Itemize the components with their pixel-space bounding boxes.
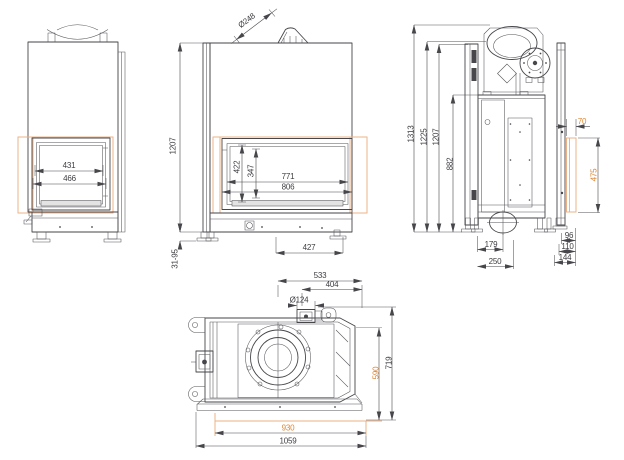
dim-250-label: 250 (489, 257, 502, 266)
body-outline (205, 318, 355, 402)
dim-31-95-label: 31-95 (171, 249, 180, 269)
pulley-wheel (520, 48, 550, 83)
dim-1225-label: 1225 (420, 128, 429, 146)
dim-144-label: 144 (559, 253, 572, 262)
dim-533-label: 533 (314, 271, 327, 280)
dim-1207-front-label: 1207 (169, 137, 178, 155)
dim-1313-label: 1313 (407, 125, 416, 143)
dim-frame-height: 475 (578, 138, 600, 213)
flue-saddle (47, 25, 108, 42)
flue-collar (278, 28, 308, 43)
dim-248-label: Ø248 (236, 11, 257, 30)
bracket (321, 308, 336, 322)
dim-719-label: 719 (385, 356, 394, 369)
dim-110-label: 110 (561, 242, 574, 251)
dims-heights: 1313 1225 1207 882 (407, 25, 491, 232)
dim-771-label: 771 (282, 172, 295, 181)
dims-frame-depth: 96 110 144 (555, 228, 576, 266)
base-and-feet (197, 213, 352, 241)
dim-466-label: 466 (63, 174, 76, 183)
dim-427-label: 427 (303, 243, 316, 252)
dim-431-label: 431 (63, 161, 76, 170)
flue-collar-assembly (484, 27, 550, 96)
dim-1059-label: 1059 (280, 437, 298, 446)
base-and-feet (462, 210, 556, 235)
left-side-view: 431 466 (18, 25, 125, 242)
dims-side-left: 431 466 (33, 161, 106, 189)
rear-panel (465, 44, 478, 225)
dim-404-label: 404 (326, 280, 339, 289)
technical-drawing: 431 466 1207 31-95 Ø248 (0, 0, 624, 460)
dim-806-label: 806 (282, 183, 295, 192)
right-side-view: 1313 1225 1207 882 (407, 25, 601, 269)
dims-height-chain: 1207 31-95 (169, 43, 205, 269)
dim-1207-side-label: 1207 (432, 128, 441, 146)
dim-590-label: 590 (372, 366, 381, 379)
front-view: Ø248 422 (197, 9, 367, 253)
dim-flue-diameter: Ø248 (231, 9, 277, 44)
dim-124-label: Ø124 (290, 296, 310, 305)
top-view: 533 404 Ø124 719 590 930 1059 (189, 271, 397, 448)
body (478, 92, 545, 219)
mounting-tabs (189, 318, 206, 402)
drawing-canvas: 431 466 1207 31-95 Ø248 (0, 0, 624, 460)
dim-882-label: 882 (446, 157, 455, 170)
dim-70-label: 70 (578, 117, 587, 126)
dim-930-label: 930 (282, 424, 295, 433)
flue-flange (246, 322, 311, 398)
dim-422-label: 422 (233, 160, 242, 173)
dims-front: 422 347 771 806 427 (222, 145, 352, 253)
dim-347-label: 347 (247, 164, 256, 177)
dims-top: 533 404 Ø124 719 590 930 1059 (196, 271, 396, 448)
base-and-feet (32, 212, 121, 242)
dim-96-label: 96 (565, 231, 574, 240)
intake-connector (297, 310, 322, 323)
front-frame-post (553, 43, 567, 229)
dims-intake: 179 250 (478, 234, 514, 269)
finishing-frame-highlight (567, 138, 577, 212)
damper-diamond (498, 64, 517, 83)
dim-179-label: 179 (485, 240, 498, 249)
latch-box (191, 351, 213, 372)
dim-475-label: 475 (590, 168, 599, 181)
body-outline (28, 42, 118, 212)
